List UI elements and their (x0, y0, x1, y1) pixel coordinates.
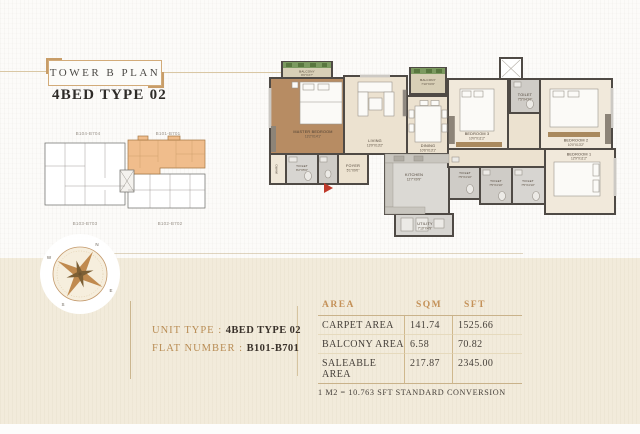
svg-text:7'5"X4'10": 7'5"X4'10" (489, 183, 503, 187)
room-label: BEDROOM 2 (564, 139, 589, 143)
svg-text:7'10"X4'9": 7'10"X4'9" (418, 227, 432, 231)
key-plan: B104-B704 B101-B701 B103-B703 B102-B702 (40, 128, 210, 228)
unit-type-value: 4BED TYPE 02 (226, 325, 301, 336)
svg-text:7'5"X4'10": 7'5"X4'10" (521, 183, 535, 187)
flat-number-value: B101-B701 (247, 343, 300, 354)
svg-text:10'0"X11'2": 10'0"X11'2" (469, 136, 485, 140)
floor-plan: MASTER BEDROOM 13'2"X14'1" LIVING 13'9"X… (262, 56, 622, 242)
divider-left (130, 301, 131, 379)
room-label: KITCHEN (405, 173, 423, 177)
table-row-carpet-sqm: 141.74 (404, 316, 452, 334)
flat-number-label: FLAT NUMBER : (152, 343, 247, 354)
corridor (448, 149, 545, 167)
band-top-line (112, 253, 523, 254)
svg-text:13'2"X14'1": 13'2"X14'1" (305, 135, 321, 139)
svg-text:7'10"X4'9": 7'10"X4'9" (421, 82, 435, 86)
key-plan-label: B101-B701 (156, 131, 181, 136)
room-label: LIVING (368, 139, 382, 143)
svg-text:10'0"X13'2": 10'0"X13'2" (568, 143, 584, 147)
table-row-saleable-label: SALEABLE AREA (318, 353, 404, 384)
svg-text:12'9"X11'2": 12'9"X11'2" (571, 157, 587, 161)
tower-title-box: TOWER B PLAN (48, 60, 162, 86)
col-header-sft: SFT (452, 296, 522, 316)
room-label: WARD (275, 163, 279, 173)
flat-number-line: FLAT NUMBER : B101-B701 (152, 340, 301, 358)
title-corner-br (148, 72, 164, 88)
unit-type-line: UNIT TYPE : 4BED TYPE 02 (152, 322, 301, 340)
key-plan-label: B103-B703 (73, 221, 98, 226)
key-plan-right-lower (128, 174, 205, 208)
room-label: MASTER BEDROOM (293, 130, 332, 134)
tower-title: TOWER B PLAN (50, 67, 160, 79)
svg-text:12'7"X9'9": 12'7"X9'9" (407, 178, 421, 182)
room-label: UTILITY (417, 222, 433, 226)
bottom-white-strip (0, 424, 640, 434)
compass-icon: N E S W (36, 230, 132, 322)
compass-e: E (109, 288, 112, 293)
table-row-balcony-sft: 70.82 (452, 334, 522, 353)
svg-text:5'1"X9'0": 5'1"X9'0" (347, 169, 360, 173)
svg-text:7'5"X4'10": 7'5"X4'10" (518, 98, 532, 102)
area-table: AREA SQM SFT CARPET AREA 141.74 1525.66 … (318, 296, 522, 397)
unit-type-heading: 4BED TYPE 02 (52, 87, 167, 104)
brochure-page: TOWER B PLAN 4BED TYPE 02 B104-B704 B101… (0, 0, 640, 434)
col-header-area: AREA (318, 296, 404, 316)
table-row-saleable-sft: 2345.00 (452, 353, 522, 384)
compass-n: N (95, 242, 98, 247)
table-row-balcony-sqm: 6.58 (404, 334, 452, 353)
svg-text:10'6"X13'1": 10'6"X13'1" (420, 148, 436, 152)
table-row-carpet-sft: 1525.66 (452, 316, 522, 334)
unit-info-block: UNIT TYPE : 4BED TYPE 02 FLAT NUMBER : B… (152, 322, 301, 358)
inner-hall (508, 113, 540, 149)
table-row-saleable-sqm: 217.87 (404, 353, 452, 384)
compass-s: S (61, 302, 64, 307)
svg-text:7'5"X4'10": 7'5"X4'10" (458, 175, 472, 179)
svg-text:8'2"X5'0": 8'2"X5'0" (296, 168, 308, 172)
conversion-footnote: 1 M2 = 10.763 SFT STANDARD CONVERSION (318, 384, 522, 397)
title-corner-tl (46, 58, 62, 74)
title-rule-left (0, 71, 48, 72)
key-plan-label: B102-B702 (158, 221, 183, 226)
room-label: TOILET (518, 93, 533, 97)
col-header-sqm: SQM (404, 296, 452, 316)
svg-text:9'6"X4'7": 9'6"X4'7" (301, 73, 313, 77)
svg-text:13'9"X13'2": 13'9"X13'2" (367, 144, 383, 148)
unit-type-label: UNIT TYPE : (152, 325, 226, 336)
table-row-carpet-label: CARPET AREA (318, 316, 404, 334)
key-plan-label: B104-B704 (76, 131, 101, 136)
room-label: FOYER (346, 164, 360, 168)
table-row-balcony-label: BALCONY AREA (318, 334, 404, 353)
key-plan-unit-highlighted (128, 140, 205, 174)
